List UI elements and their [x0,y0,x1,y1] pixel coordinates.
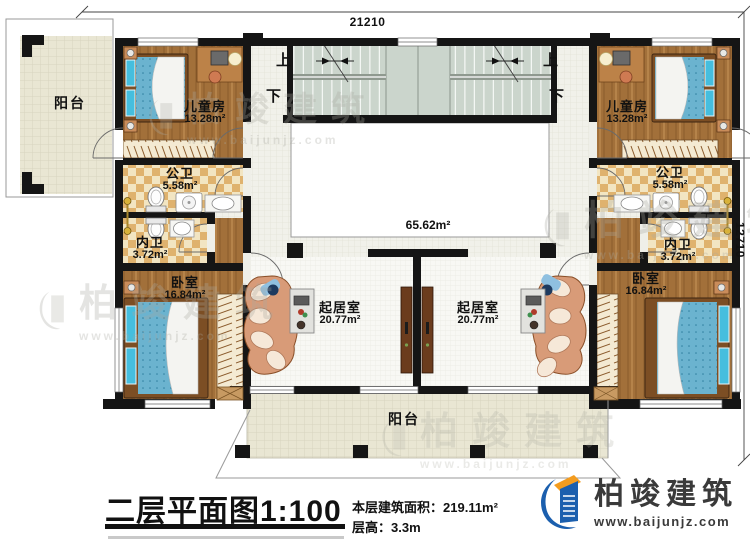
brand-logo: 柏竣建筑 www.baijunjz.com [536,468,738,530]
plan-specs: 本层建筑面积：219.11m² 层高：3.3m [352,498,498,538]
title-underline-secondary [108,536,344,539]
floor-height-row: 层高：3.3m [352,518,498,538]
title-underline [105,524,345,529]
brand-logo-icon [536,468,586,530]
floor-plan-page: 柏竣建筑www.baijunjz.com 柏竣建筑www.baijunjz.co… [0,0,750,542]
brand-url: www.baijunjz.com [594,514,738,529]
floor-plan-drawing [0,0,750,542]
title-block: 二层平面图1:100 本层建筑面积：219.11m² 层高：3.3m 柏竣建筑 … [0,462,750,542]
floor-area-row: 本层建筑面积：219.11m² [352,498,498,518]
brand-name: 柏竣建筑 [594,469,738,513]
